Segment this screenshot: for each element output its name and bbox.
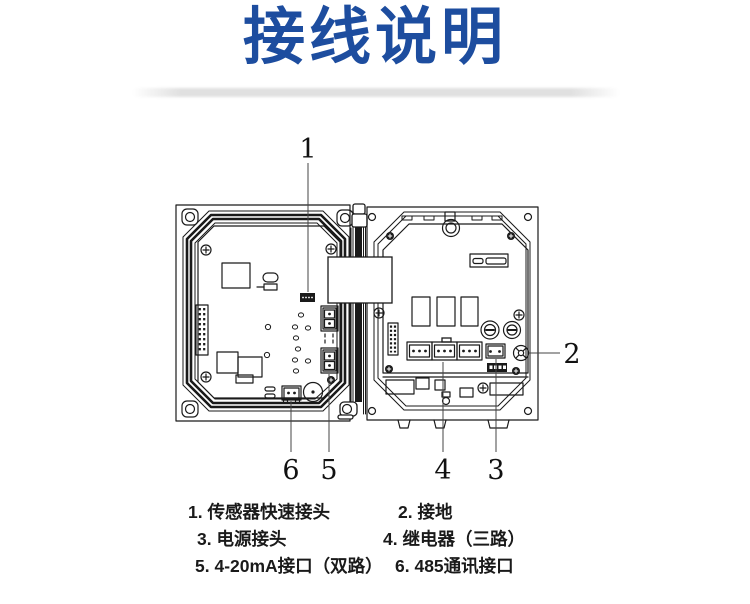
callout-number-6: 6 — [282, 455, 299, 486]
ic-chip — [222, 263, 250, 288]
cable-gland-strip — [383, 377, 528, 405]
current-output-terminals — [321, 306, 338, 373]
solder-holes — [264, 313, 310, 373]
relay-module — [238, 357, 262, 377]
hinge-pin-top — [353, 204, 365, 214]
rs485-connector — [282, 386, 301, 403]
jumper-block — [470, 254, 508, 267]
capacitor — [263, 273, 278, 282]
callout-number-2: 2 — [563, 339, 580, 370]
back-circuit-board — [374, 224, 529, 375]
callout-number-1: 1 — [299, 134, 316, 165]
sensor-quick-connector — [300, 293, 315, 302]
door-circuit-board — [196, 226, 340, 403]
relays — [412, 297, 478, 326]
config-pin-block — [487, 363, 507, 372]
back-panel — [367, 207, 538, 428]
small-component — [264, 284, 277, 290]
transformer — [217, 352, 238, 373]
hinge-knuckle-bottom — [338, 402, 357, 419]
mounting-feet — [398, 420, 509, 428]
front-door-panel — [176, 205, 353, 421]
back-pin-header — [388, 323, 398, 355]
back-corner-holes — [369, 214, 532, 415]
wiring-diagram: 1 2 3 4 5 6 — [0, 0, 750, 604]
display-cable-cover — [328, 257, 392, 303]
relay-terminal-blocks — [407, 338, 482, 360]
power-connector — [486, 344, 505, 358]
fuse-holders — [481, 321, 521, 339]
callout-number-3: 3 — [487, 455, 504, 486]
page: 接线说明 — [0, 0, 750, 604]
callout-number-4: 4 — [434, 455, 451, 486]
hinge-knuckle-top — [352, 214, 367, 227]
callout-number-5: 5 — [320, 455, 337, 486]
